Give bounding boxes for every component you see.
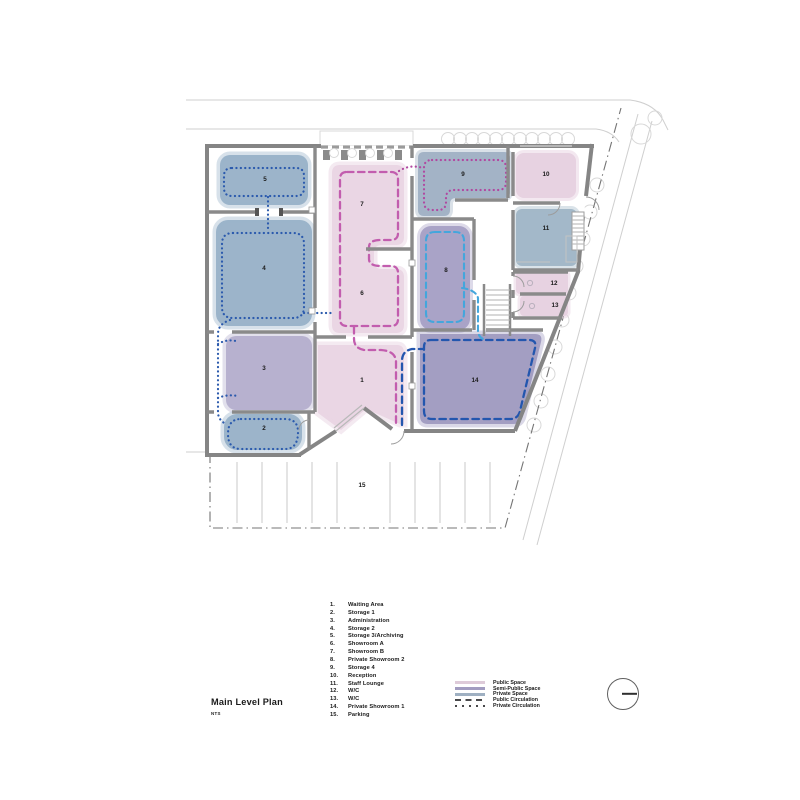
room-schedule-item: 2.Storage 1	[330, 609, 404, 617]
legend: Public Space Semi-Public Space Private S…	[455, 680, 540, 709]
room-schedule-item: 15.Parking	[330, 711, 404, 719]
side-stair	[572, 212, 584, 250]
room-schedule-number: 13.	[330, 696, 348, 702]
room-schedule-item: 3.Administration	[330, 617, 404, 625]
plan-room-number-7: 7	[360, 201, 364, 208]
plan-room-number-12: 12	[550, 280, 558, 287]
room-schedule-name: Waiting Area	[348, 602, 384, 608]
room-schedule-number: 2.	[330, 610, 348, 616]
plan-room-number-6: 6	[360, 290, 364, 297]
room-schedule-number: 11.	[330, 681, 348, 687]
room-schedule-item: 9.Storage 4	[330, 664, 404, 672]
room-schedule-name: Parking	[348, 712, 370, 718]
floor-plan-sheet: 1 2 3 4 5 6 7 8 9 10 11 12 13 14 15 1.Wa…	[0, 0, 800, 800]
plan-room-number-14: 14	[471, 377, 479, 384]
public-space-swatch	[455, 681, 485, 684]
private-circulation-line-sample	[455, 705, 485, 707]
room-3-area	[226, 336, 312, 410]
room-schedule-name: Storage 4	[348, 665, 375, 671]
plan-room-number-4: 4	[262, 265, 266, 272]
room-schedule-number: 3.	[330, 618, 348, 624]
legend-label: Private Circulation	[493, 703, 540, 709]
plan-room-number-15: 15	[358, 482, 366, 489]
plan-room-number-11: 11	[543, 225, 550, 232]
legend-item-private-circulation: Private Circulation	[455, 703, 540, 709]
plan-room-number-10: 10	[542, 171, 550, 178]
plan-room-number-2: 2	[262, 425, 266, 432]
north-arrow-needle	[622, 693, 637, 695]
room-11-area	[516, 209, 577, 266]
plan-room-number-5: 5	[263, 176, 267, 183]
room-schedule-name: Showroom B	[348, 649, 384, 655]
room-schedule-name: Staff Lounge	[348, 681, 384, 687]
room-schedule-name: Administration	[348, 618, 390, 624]
room-4-area	[216, 220, 312, 326]
room-schedule-name: Showroom A	[348, 641, 384, 647]
public-circulation-line-sample	[455, 699, 485, 701]
room-schedule-name: Storage 1	[348, 610, 375, 616]
room-schedule-number: 15.	[330, 712, 348, 718]
room-1-area	[318, 345, 404, 430]
private-space-swatch	[455, 693, 485, 696]
room-schedule-item: 5.Storage 3/Archiving	[330, 632, 404, 640]
room-schedule-number: 6.	[330, 641, 348, 647]
room-schedule: 1.Waiting Area 2.Storage 1 3.Administrat…	[330, 601, 404, 719]
plan-room-number-1: 1	[360, 377, 364, 384]
room-schedule-number: 10.	[330, 673, 348, 679]
room-schedule-number: 4.	[330, 626, 348, 632]
parking-stall-lines	[237, 462, 490, 523]
room-schedule-item: 4.Storage 2	[330, 625, 404, 633]
title-block: Main Level Plan NTS	[211, 697, 283, 716]
room-schedule-item: 11.Staff Lounge	[330, 680, 404, 688]
plan-room-number-8: 8	[444, 267, 448, 274]
scale-note: NTS	[211, 711, 283, 716]
room-schedule-item: 10.Reception	[330, 672, 404, 680]
room-schedule-name: Reception	[348, 673, 376, 679]
room-schedule-number: 1.	[330, 602, 348, 608]
room-schedule-number: 8.	[330, 657, 348, 663]
semi-public-space-swatch	[455, 687, 485, 690]
room-schedule-item: 7.Showroom B	[330, 648, 404, 656]
room-schedule-item: 1.Waiting Area	[330, 601, 404, 609]
north-arrow-icon	[607, 678, 639, 710]
room-schedule-item: 12.W/C	[330, 687, 404, 695]
room-schedule-name: Storage 2	[348, 626, 375, 632]
room-schedule-name: W/C	[348, 688, 359, 694]
plan-room-number-13: 13	[551, 302, 559, 309]
page-title: Main Level Plan	[211, 697, 283, 707]
room-schedule-number: 14.	[330, 704, 348, 710]
room-schedule-name: Private Showroom 2	[348, 657, 404, 663]
room-schedule-number: 7.	[330, 649, 348, 655]
plan-room-number-3: 3	[262, 365, 266, 372]
plan-room-number-9: 9	[461, 171, 465, 178]
room-schedule-item: 6.Showroom A	[330, 640, 404, 648]
room-schedule-number: 12.	[330, 688, 348, 694]
room-schedule-name: Private Showroom 1	[348, 704, 404, 710]
room-8-area	[420, 226, 470, 330]
room-schedule-item: 13.W/C	[330, 695, 404, 703]
room-schedule-item: 8.Private Showroom 2	[330, 656, 404, 664]
room-schedule-number: 9.	[330, 665, 348, 671]
room-schedule-number: 5.	[330, 633, 348, 639]
room-schedule-name: W/C	[348, 696, 359, 702]
room-schedule-name: Storage 3/Archiving	[348, 633, 404, 639]
room-schedule-item: 14.Private Showroom 1	[330, 703, 404, 711]
